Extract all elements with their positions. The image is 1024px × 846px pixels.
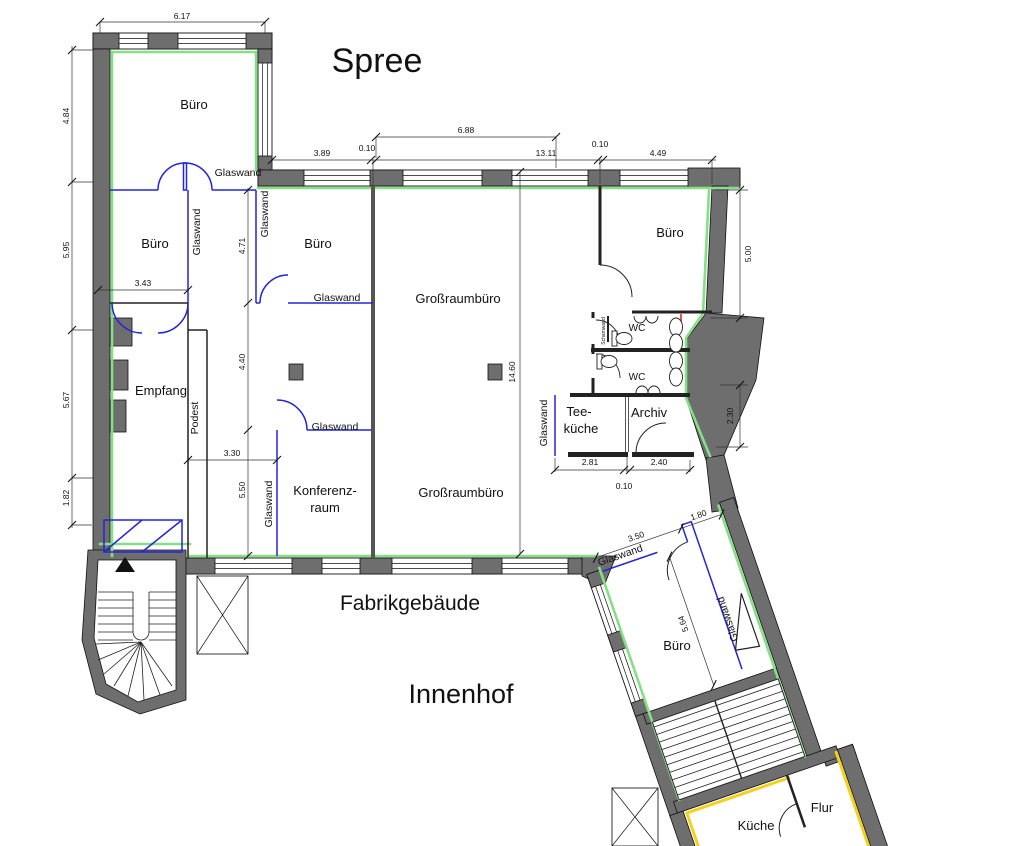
urinal — [634, 316, 658, 323]
glass-wall-label: Glaswand — [191, 209, 203, 256]
room-label-konferenzraum-line2: raum — [310, 500, 340, 515]
privacy-wall — [607, 316, 609, 342]
dim-5-67: 5.67 — [61, 391, 71, 408]
room-label-podest: Podest — [189, 402, 201, 435]
room-label-buero-mid: Büro — [304, 236, 331, 251]
dim-6-17: 6.17 — [174, 11, 191, 21]
room-label-buero-left: Büro — [141, 236, 168, 251]
glass-wall-label: Glaswand — [715, 595, 742, 643]
glass-wall-label: Glaswand — [538, 400, 550, 447]
dim-2-40: 2.40 — [651, 457, 668, 467]
floor-plan-drawing: 3.50 1.80 5.64 Glaswand Glaswand 6.17 4.… — [0, 0, 1024, 846]
room-label-grossraumbuero-top: Großraumbüro — [415, 291, 500, 306]
dim-5-50: 5.50 — [237, 481, 247, 498]
room-label-wc-top: WC — [629, 323, 646, 334]
dim-3-30: 3.30 — [224, 448, 241, 458]
glass-wall-label: Glaswand — [215, 167, 262, 179]
room-label-teekueche-line1: Tee- — [566, 404, 591, 419]
area-label-innenhof: Innenhof — [408, 679, 514, 709]
dim-6-88: 6.88 — [458, 125, 475, 135]
room-label-flur: Flur — [811, 800, 834, 815]
room-label-buero-wing: Büro — [663, 638, 690, 653]
dim-0-10: 0.10 — [592, 139, 609, 149]
dim-2-81: 2.81 — [582, 457, 599, 467]
dim-13-11: 13.11 — [536, 148, 557, 158]
dim-1-82: 1.82 — [61, 489, 71, 506]
dim-3-89: 3.89 — [314, 148, 331, 158]
column — [289, 364, 303, 380]
urinal — [636, 386, 660, 393]
floor-plan-page: 3.50 1.80 5.64 Glaswand Glaswand 6.17 4.… — [0, 0, 1024, 846]
dim-0-10: 0.10 — [616, 481, 633, 491]
dim-5-00: 5.00 — [743, 245, 753, 262]
room-label-archiv: Archiv — [631, 405, 668, 420]
room-label-grossraumbuero-bottom: Großraumbüro — [418, 485, 503, 500]
dim-4-49: 4.49 — [650, 148, 667, 158]
room-label-buero-top-right: Büro — [656, 225, 683, 240]
dim-2-30: 2.30 — [725, 407, 735, 424]
dim-4-40: 4.40 — [237, 353, 247, 370]
elevator-shaft — [197, 576, 248, 654]
glass-wall-label: Glaswand — [312, 421, 359, 433]
dim-0-10: 0.10 — [359, 143, 376, 153]
area-label-spree: Spree — [332, 42, 423, 80]
dim-5-64: 5.64 — [676, 614, 691, 633]
dimensions: 6.17 4.84 5.95 5.67 1.82 3.89 0.10 13.11… — [61, 11, 753, 560]
sink — [670, 352, 683, 370]
room-label-konferenzraum-line1: Konferenz- — [293, 483, 357, 498]
dim-14-60: 14.60 — [507, 361, 517, 383]
dim-4-71: 4.71 — [237, 237, 247, 254]
room-label-empfang: Empfang — [135, 383, 187, 398]
room-label-wc-bottom: WC — [629, 372, 646, 383]
elevator-shaft — [612, 788, 658, 846]
room-label-kueche: Küche — [738, 818, 775, 833]
label-schamwand: Schamwand — [601, 317, 607, 345]
dim-4-84: 4.84 — [61, 107, 71, 124]
room-label-buero-top-left: Büro — [180, 97, 207, 112]
sink — [670, 318, 683, 336]
column — [488, 364, 502, 380]
dim-3-43: 3.43 — [135, 278, 152, 288]
glass-wall-label: Glaswand — [263, 481, 275, 528]
glass-wall-label: Glaswand — [259, 191, 271, 238]
dim-5-95: 5.95 — [61, 241, 71, 258]
room-label-teekueche-line2: küche — [564, 421, 599, 436]
glass-wall-label: Glaswand — [314, 292, 361, 304]
area-label-fabrikgebaeude: Fabrikgebäude — [340, 592, 480, 615]
